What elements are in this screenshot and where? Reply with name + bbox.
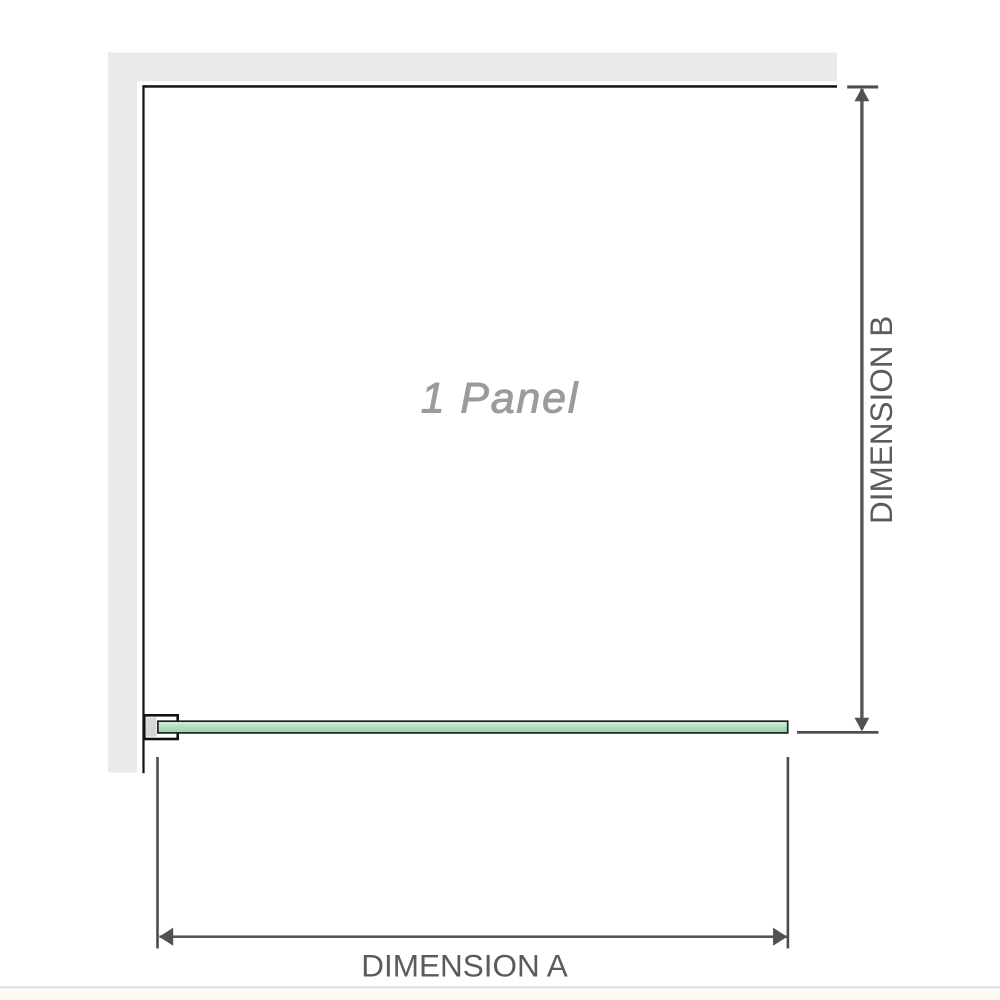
- svg-text:DIMENSION B: DIMENSION B: [863, 316, 899, 524]
- svg-text:1 Panel: 1 Panel: [421, 375, 579, 423]
- svg-text:DIMENSION A: DIMENSION A: [361, 947, 568, 983]
